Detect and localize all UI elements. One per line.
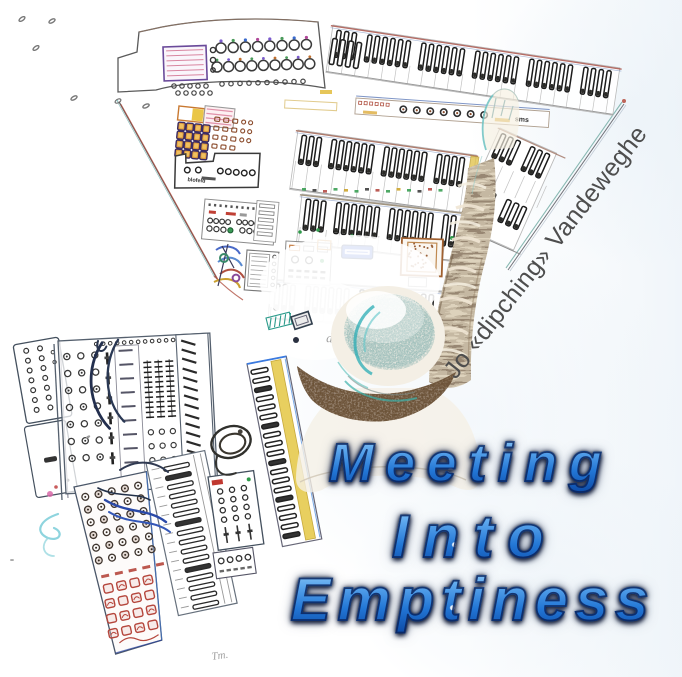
svg-text:Tm.: Tm. — [211, 649, 229, 663]
